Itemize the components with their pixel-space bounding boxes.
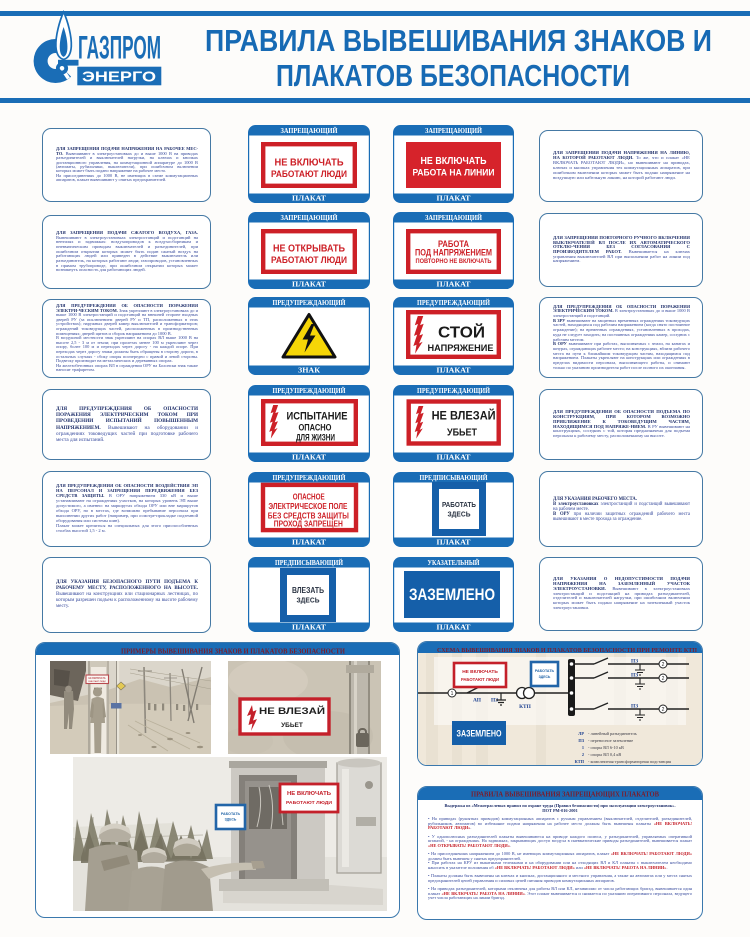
svg-text:ПЛАКАТ: ПЛАКАТ xyxy=(437,622,471,631)
svg-text:ВЛЕЗАТЬ: ВЛЕЗАТЬ xyxy=(292,586,324,595)
svg-text:2: 2 xyxy=(662,676,665,682)
svg-text:ЭЛЕКТРИЧЕСКОЕ ПОЛЕ: ЭЛЕКТРИЧЕСКОЕ ПОЛЕ xyxy=(268,501,347,511)
svg-text:ПЛАКАТ: ПЛАКАТ xyxy=(437,365,471,374)
svg-text:ЗДЕСЬ: ЗДЕСЬ xyxy=(225,818,237,822)
svg-text:КТП: КТП xyxy=(519,704,532,710)
svg-text:ПЗ: ПЗ xyxy=(578,738,584,743)
svg-text:ПЗ: ПЗ xyxy=(631,659,638,665)
svg-text:ПРЕДУПРЕЖДАЮЩИЙ: ПРЕДУПРЕЖДАЮЩИЙ xyxy=(273,386,346,395)
svg-text:ПРЕДПИСЫВАЮЩИЙ: ПРЕДПИСЫВАЮЩИЙ xyxy=(275,558,343,567)
svg-text:ДЛЯ ЖИЗНИ: ДЛЯ ЖИЗНИ xyxy=(296,432,335,443)
svg-text:ПРАВИЛА ВЫВЕШИВАНИЯ ЗАПРЕЩАЮЩИ: ПРАВИЛА ВЫВЕШИВАНИЯ ЗАПРЕЩАЮЩИХ ПЛАКАТОВ xyxy=(471,790,659,798)
svg-text:ЗАЗЕМЛЕНО: ЗАЗЕМЛЕНО xyxy=(409,585,495,604)
svg-text:- комплектная трансформаторная: - комплектная трансформаторная подстанци… xyxy=(588,759,671,764)
svg-text:ПОВТОРНО НЕ ВКЛЮЧАТЬ: ПОВТОРНО НЕ ВКЛЮЧАТЬ xyxy=(416,258,492,265)
svg-text:1: 1 xyxy=(582,745,584,750)
svg-text:ПРЕДУПРЕЖДАЮЩИЙ: ПРЕДУПРЕЖДАЮЩИЙ xyxy=(273,298,346,307)
svg-text:РАБОТАЮТ ЛЮДИ: РАБОТАЮТ ЛЮДИ xyxy=(461,677,499,682)
svg-text:РАБОТАТЬ: РАБОТАТЬ xyxy=(221,812,241,816)
svg-text:ЗАПРЕЩАЮЩИЙ: ЗАПРЕЩАЮЩИЙ xyxy=(281,213,338,222)
svg-text:- переносное заземление: - переносное заземление xyxy=(588,738,633,743)
svg-text:ПЛАКАТ: ПЛАКАТ xyxy=(437,193,471,202)
svg-text:2: 2 xyxy=(662,707,665,713)
svg-text:ЗДЕСЬ: ЗДЕСЬ xyxy=(448,510,471,519)
svg-text:ЗАПРЕЩАЮЩИЙ: ЗАПРЕЩАЮЩИЙ xyxy=(425,126,482,135)
svg-text:РАБОТАЮТ ЛЮДИ: РАБОТАЮТ ЛЮДИ xyxy=(286,800,332,805)
svg-text:НЕ ВЛЕЗАЙ: НЕ ВЛЕЗАЙ xyxy=(432,408,496,423)
svg-text:НАПРЯЖЕНИЕ: НАПРЯЖЕНИЕ xyxy=(428,343,494,353)
svg-text:ПЛАКАТ: ПЛАКАТ xyxy=(292,452,326,461)
svg-text:1: 1 xyxy=(451,691,454,697)
svg-text:УБЬЕТ: УБЬЕТ xyxy=(281,722,303,729)
svg-text:РАБОТАЮТ ЛЮДИ: РАБОТАЮТ ЛЮДИ xyxy=(271,255,347,265)
svg-text:КТП: КТП xyxy=(575,759,585,764)
svg-text:ПЛАКАТОВ БЕЗОПАСНОСТИ: ПЛАКАТОВ БЕЗОПАСНОСТИ xyxy=(276,59,630,93)
svg-text:ПРЕДУПРЕЖДАЮЩИЙ: ПРЕДУПРЕЖДАЮЩИЙ xyxy=(417,386,490,395)
svg-text:УКАЗАТЕЛЬНЫЙ: УКАЗАТЕЛЬНЫЙ xyxy=(428,558,480,567)
svg-text:НЕ ВЛЕЗАЙ: НЕ ВЛЕЗАЙ xyxy=(259,705,325,717)
svg-text:ПРИМЕРЫ ВЫВЕШИВАНИЯ ЗНАКОВ И П: ПРИМЕРЫ ВЫВЕШИВАНИЯ ЗНАКОВ И ПЛАКАТОВ БЕ… xyxy=(121,648,346,655)
svg-text:НЕ ОТКРЫВАТЬ: НЕ ОТКРЫВАТЬ xyxy=(273,244,345,255)
svg-text:ЗАПРЕЩАЮЩИЙ: ЗАПРЕЩАЮЩИЙ xyxy=(281,126,338,135)
svg-text:ЗАПРЕЩАЮЩИЙ: ЗАПРЕЩАЮЩИЙ xyxy=(425,213,482,222)
svg-text:НЕ ВКЛЮЧАТЬ: НЕ ВКЛЮЧАТЬ xyxy=(421,156,487,167)
svg-text:УБЬЕТ: УБЬЕТ xyxy=(447,428,477,439)
svg-text:ПРЕДУПРЕЖДАЮЩИЙ: ПРЕДУПРЕЖДАЮЩИЙ xyxy=(417,298,490,307)
svg-text:ПРОХОД ЗАПРЕЩЕН: ПРОХОД ЗАПРЕЩЕН xyxy=(274,519,343,528)
svg-text:РАБОТАТЬ: РАБОТАТЬ xyxy=(442,500,476,509)
svg-text:ОПАСНОЕ: ОПАСНОЕ xyxy=(293,492,325,502)
svg-text:ЗНАК: ЗНАК xyxy=(298,365,321,374)
svg-text:РАБОТА НА ЛИНИИ: РАБОТА НА ЛИНИИ xyxy=(413,168,495,178)
svg-text:- опоры ВЛ 6-10 кВ: - опоры ВЛ 6-10 кВ xyxy=(588,745,624,750)
svg-text:ПЗ: ПЗ xyxy=(631,673,638,679)
svg-text:АП: АП xyxy=(473,698,482,704)
svg-text:ПРЕДУПРЕЖДАЮЩИЙ: ПРЕДУПРЕЖДАЮЩИЙ xyxy=(273,473,346,482)
svg-text:ПЛАКАТ: ПЛАКАТ xyxy=(437,452,471,461)
svg-text:ЗДЕСЬ: ЗДЕСЬ xyxy=(297,596,320,605)
svg-text:ЭНЕРГО: ЭНЕРГО xyxy=(82,69,156,86)
svg-text:ПОД НАПРЯЖЕНИЕМ: ПОД НАПРЯЖЕНИЕМ xyxy=(415,248,492,258)
svg-text:ПЛАКАТ: ПЛАКАТ xyxy=(437,279,471,288)
svg-text:- линейный разъединитель: - линейный разъединитель xyxy=(588,731,637,736)
svg-text:ПЛАКАТ: ПЛАКАТ xyxy=(292,622,326,631)
svg-text:ЗАЗЕМЛЕНО: ЗАЗЕМЛЕНО xyxy=(457,729,502,740)
svg-text:СТОЙ: СТОЙ xyxy=(438,323,485,342)
svg-text:ПЛАКАТ: ПЛАКАТ xyxy=(292,279,326,288)
svg-text:НЕ ВКЛЮЧАТЬ: НЕ ВКЛЮЧАТЬ xyxy=(275,158,344,169)
svg-text:РАБОТАТЬ: РАБОТАТЬ xyxy=(535,669,555,673)
svg-text:ПЛАКАТ: ПЛАКАТ xyxy=(437,537,471,546)
svg-text:ЛР: ЛР xyxy=(578,731,584,736)
svg-text:ПРАВИЛА ВЫВЕШИВАНИЯ ЗНАКОВ И: ПРАВИЛА ВЫВЕШИВАНИЯ ЗНАКОВ И xyxy=(205,24,712,58)
svg-text:НЕ ВКЛЮЧАТЬ: НЕ ВКЛЮЧАТЬ xyxy=(462,669,498,675)
svg-text:2: 2 xyxy=(662,662,665,668)
svg-text:НЕ ВКЛЮЧАТЬ: НЕ ВКЛЮЧАТЬ xyxy=(287,791,331,797)
svg-text:РАБОТАЮТ ЛЮДИ: РАБОТАЮТ ЛЮДИ xyxy=(271,169,347,179)
svg-text:2: 2 xyxy=(582,752,584,757)
svg-text:ПРЕДПИСЫВАЮЩИЙ: ПРЕДПИСЫВАЮЩИЙ xyxy=(420,473,488,482)
svg-text:ПЛАКАТ: ПЛАКАТ xyxy=(292,193,326,202)
svg-text:ПЗ: ПЗ xyxy=(631,704,638,710)
svg-text:ЗДЕСЬ: ЗДЕСЬ xyxy=(539,675,551,679)
svg-text:ГАЗПРОМ: ГАЗПРОМ xyxy=(78,30,161,66)
svg-text:ПЛАКАТ: ПЛАКАТ xyxy=(292,537,326,546)
